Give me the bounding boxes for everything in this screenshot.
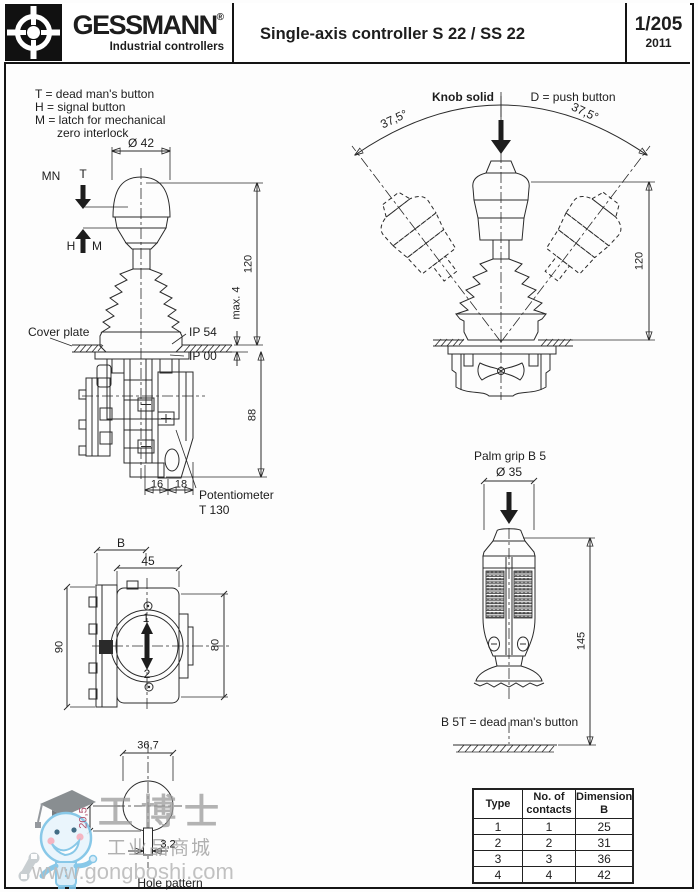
table-cell: 2: [523, 835, 576, 851]
label-m: M: [92, 240, 102, 252]
table-header-dimension-b: Dimension B: [576, 789, 634, 819]
legend-line-3: M = latch for mechanical: [35, 114, 165, 126]
label-potentiometer: Potentiometer: [199, 489, 274, 501]
figure-palm-grip: [453, 478, 596, 752]
dimension-table: Type No. of contacts Dimension B 1 1 25 …: [472, 788, 634, 884]
dim-145: 145: [577, 632, 588, 650]
label-position-1: 1: [143, 612, 150, 624]
table-row: 2 2 31: [473, 835, 633, 851]
label-palm-grip: Palm grip B 5: [474, 450, 546, 462]
dim-120-deflection: 120: [635, 252, 646, 270]
dim-88: 88: [248, 409, 259, 421]
table-cell: 25: [576, 819, 634, 835]
dim-18: 18: [175, 480, 187, 491]
label-knob-solid: Knob solid: [432, 91, 494, 103]
watermark-url: www.gongboshi.com: [32, 861, 234, 883]
figure-side-view: [50, 147, 267, 495]
table-row: 1 1 25: [473, 819, 633, 835]
table-cell: 1: [473, 819, 523, 835]
table-row: 3 3 36: [473, 851, 633, 867]
dim-45: 45: [141, 555, 154, 567]
label-dead-mans-button: B 5T = dead man's button: [441, 716, 578, 728]
dim-b: B: [117, 537, 125, 549]
table-cell: 31: [576, 835, 634, 851]
table-cell: 42: [576, 867, 634, 884]
legend-line-2: H = signal button: [35, 101, 125, 113]
table-row: 4 4 42: [473, 867, 633, 884]
dim-3-2: 3,2: [160, 840, 175, 851]
watermark-name: 工博士: [98, 795, 227, 830]
label-h: H: [67, 240, 76, 252]
table-cell: 3: [523, 851, 576, 867]
label-hole-pattern: Hole pattern: [137, 877, 202, 889]
label-t: T: [79, 168, 86, 180]
table-cell: 4: [473, 867, 523, 884]
label-push-button: D = push button: [530, 91, 615, 103]
label-potentiometer-type: T 130: [199, 504, 229, 516]
table-cell: 3: [473, 851, 523, 867]
label-cover-plate: Cover plate: [28, 326, 89, 338]
figure-front-view: [64, 547, 230, 712]
table-cell: 1: [523, 819, 576, 835]
label-position-2: 2: [144, 668, 151, 680]
label-ip00: IP 00: [189, 350, 217, 362]
label-mn: MN: [42, 170, 61, 182]
datasheet-page: GESSMANN® Industrial controllers Single-…: [0, 0, 698, 892]
dim-max4: max. 4: [232, 286, 243, 319]
dim-diameter-35: Ø 35: [496, 466, 522, 478]
table-cell: 2: [473, 835, 523, 851]
figure-deflection-view: [352, 92, 655, 400]
dim-120-side: 120: [244, 255, 255, 273]
dim-20-5: 20,5: [79, 807, 90, 828]
legend-line-1: T = dead man's button: [35, 88, 154, 100]
dim-90: 90: [55, 641, 66, 653]
dim-80: 80: [211, 639, 222, 651]
table-cell: 36: [576, 851, 634, 867]
dim-diameter-42: Ø 42: [128, 137, 154, 149]
dim-16: 16: [151, 480, 163, 491]
table-header-contacts: No. of contacts: [523, 789, 576, 819]
dim-36-7: 36,7: [137, 741, 158, 752]
table-header-type: Type: [473, 789, 523, 819]
label-ip54: IP 54: [189, 326, 217, 338]
legend-line-4: zero interlock: [57, 127, 128, 139]
table-cell: 4: [523, 867, 576, 884]
